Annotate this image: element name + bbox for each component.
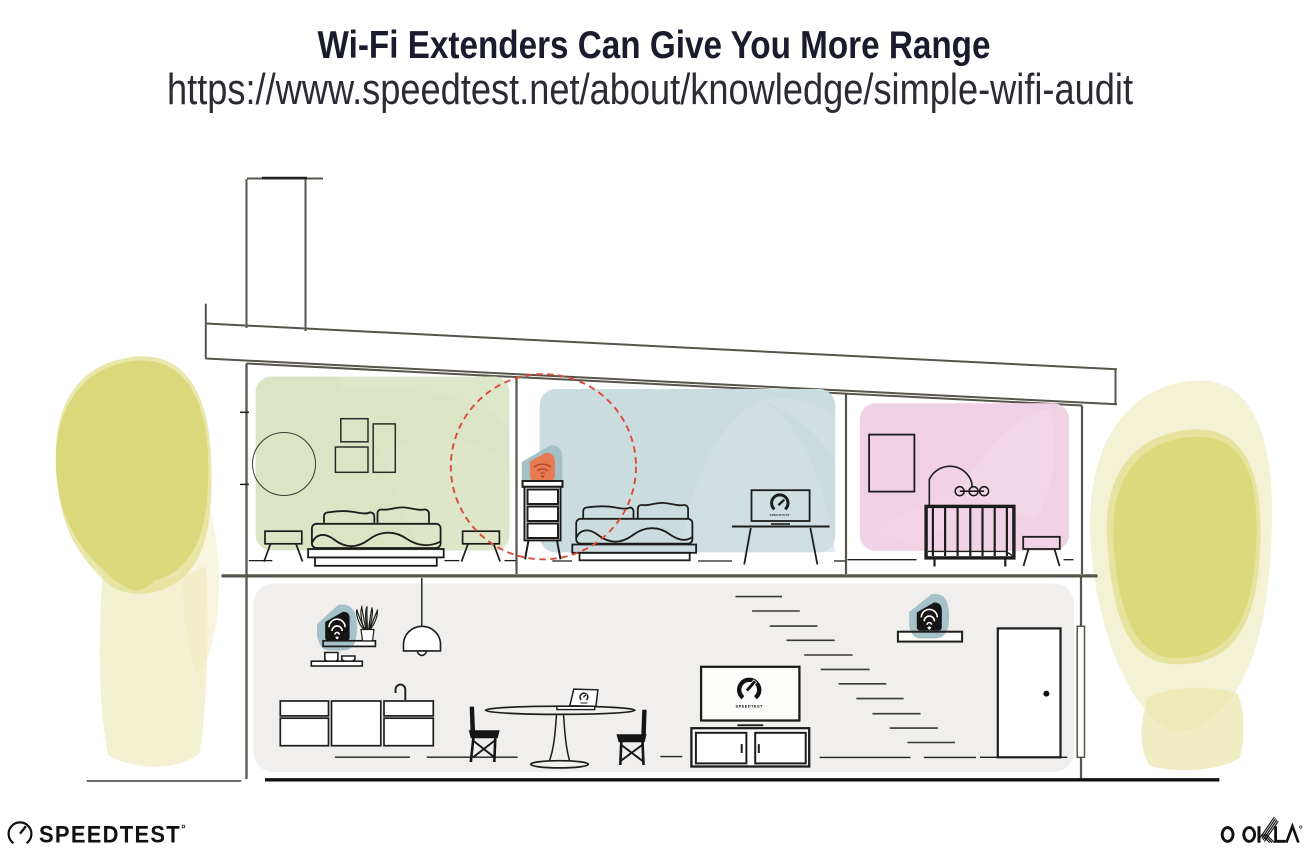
svg-text:Wi-Fi Extenders Can Give You M: Wi-Fi Extenders Can Give You More Range <box>318 24 991 67</box>
svg-text:SPEEDTEST: SPEEDTEST <box>39 822 181 849</box>
svg-text:https://www.speedtest.net/abou: https://www.speedtest.net/about/knowledg… <box>167 65 1133 114</box>
svg-text:SPEEDTEST: SPEEDTEST <box>736 704 764 709</box>
svg-text:SPEEDTEST: SPEEDTEST <box>770 513 791 517</box>
